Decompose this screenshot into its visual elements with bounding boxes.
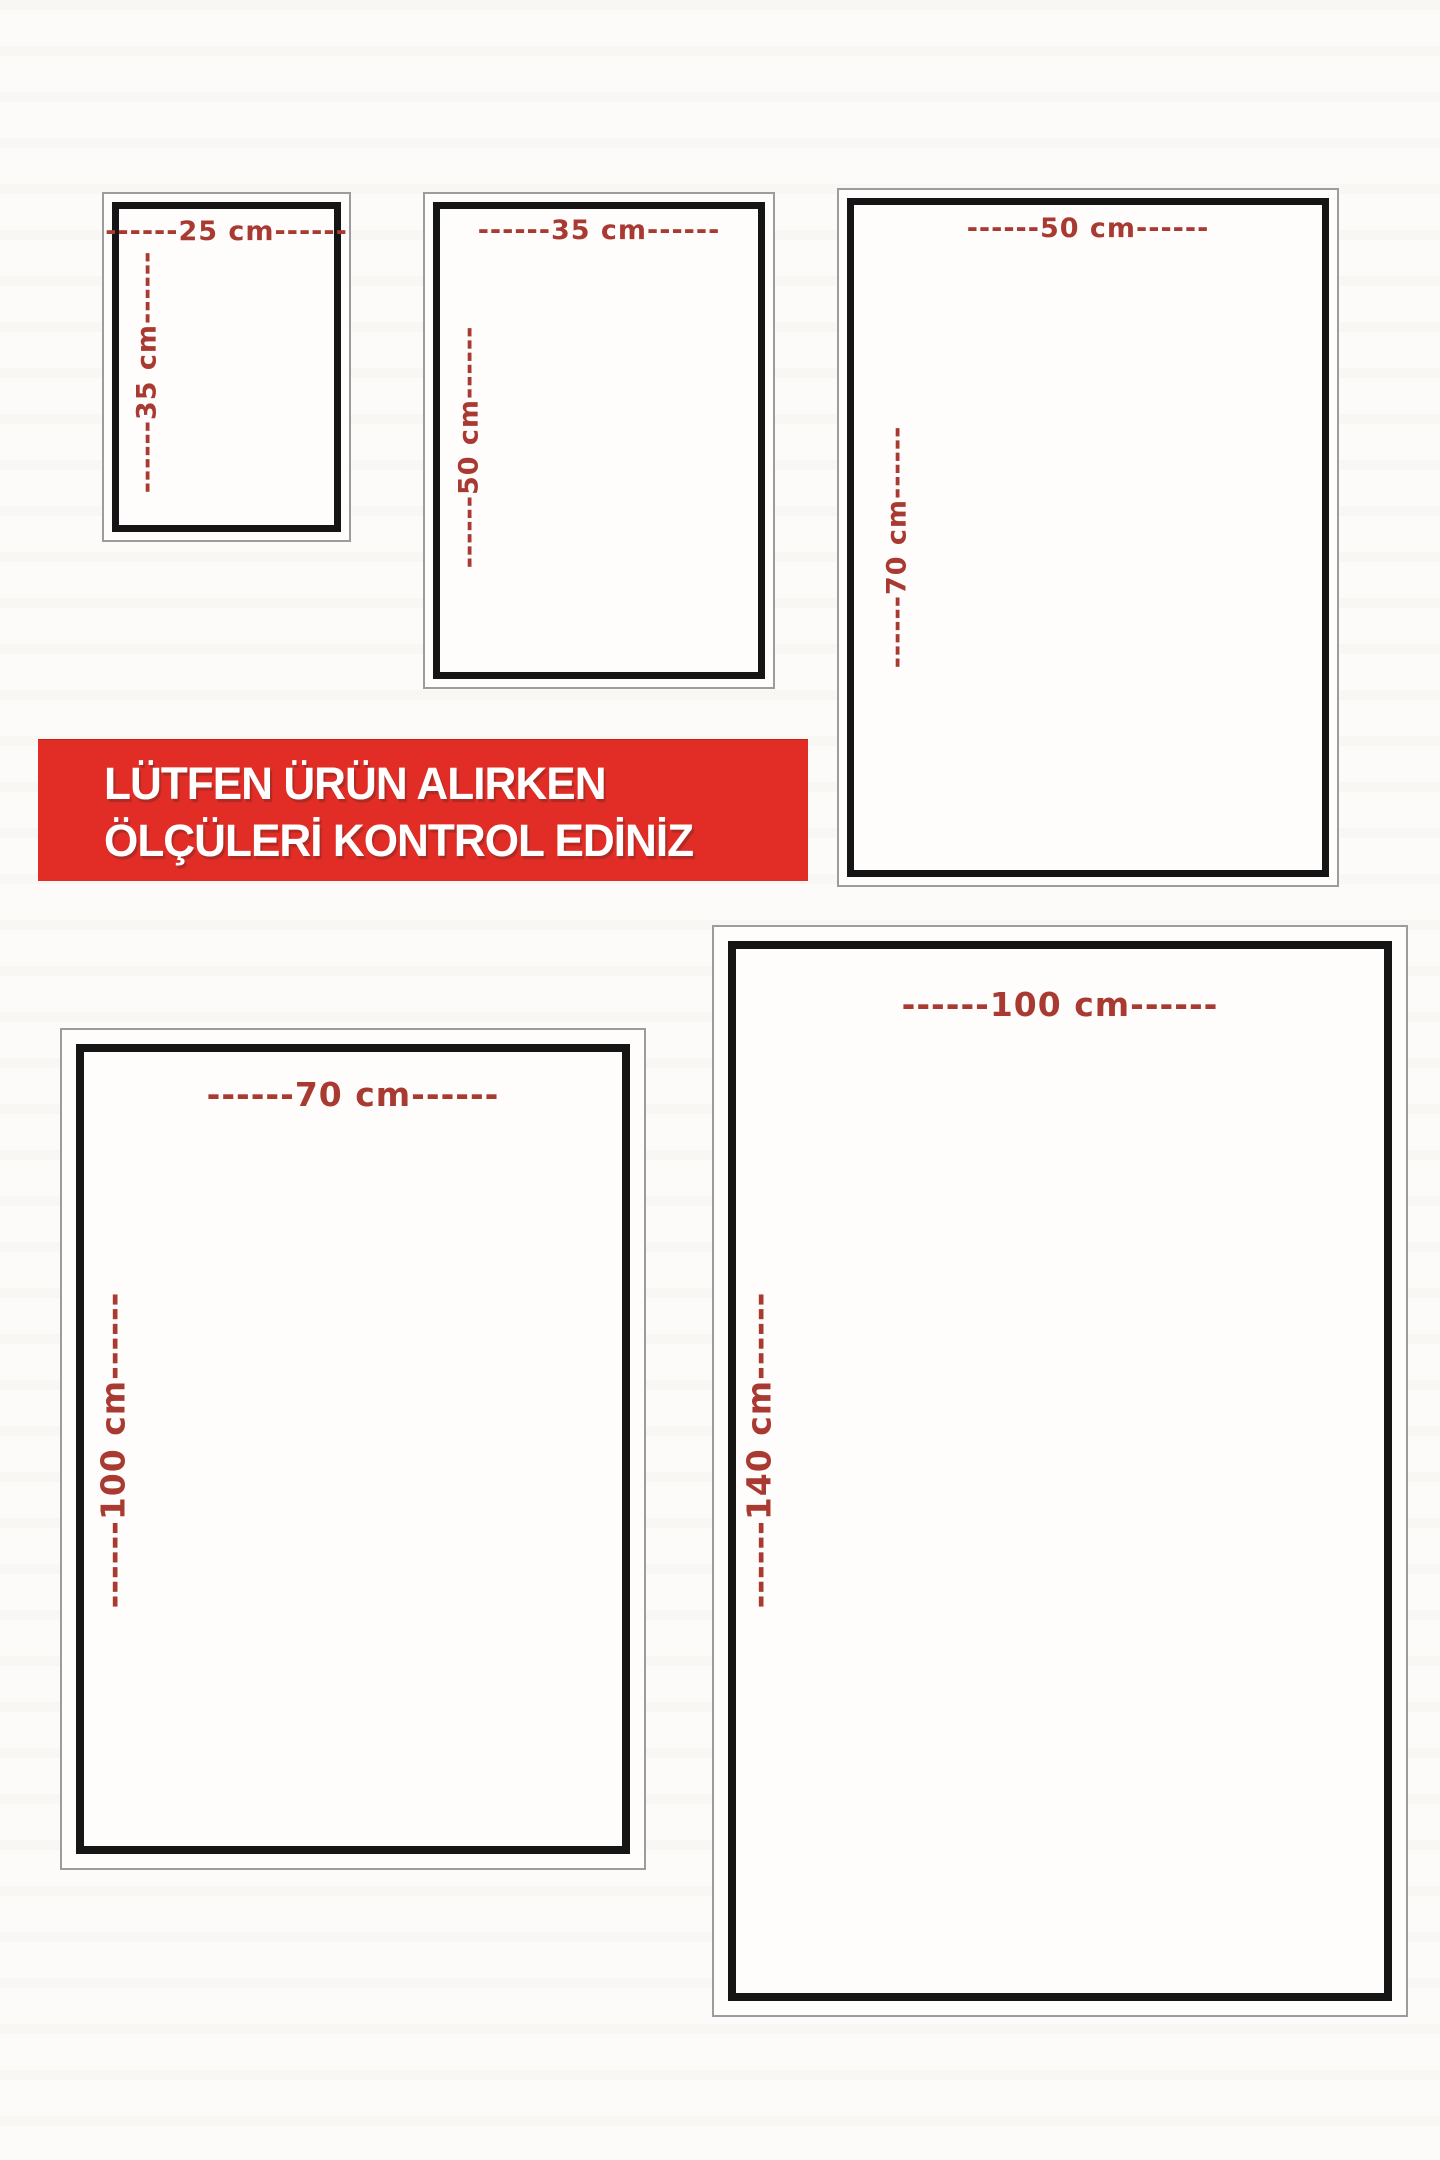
width-label: ------25 cm------ [105, 216, 348, 247]
size-box-100x140: ------100 cm------ ------140 cm------ [712, 925, 1408, 2017]
size-box-70x100: ------70 cm------ ------100 cm------ [60, 1028, 646, 1870]
size-box-25x35: ------25 cm------ ------35 cm------ [102, 192, 351, 542]
size-box-50x70-frame [847, 198, 1329, 877]
width-label: ------50 cm------ [967, 213, 1210, 244]
width-label: ------100 cm------ [902, 985, 1219, 1024]
notice-banner: LÜTFEN ÜRÜN ALIRKEN ÖLÇÜLERİ KONTROL EDİ… [38, 739, 808, 881]
width-label: ------35 cm------ [478, 215, 721, 246]
notice-line-1: LÜTFEN ÜRÜN ALIRKEN [104, 755, 774, 812]
height-label: ------70 cm------ [882, 426, 913, 669]
notice-line-2: ÖLÇÜLERİ KONTROL EDİNİZ [104, 812, 774, 869]
size-box-35x50: ------35 cm------ ------50 cm------ [423, 192, 775, 689]
height-label: ------35 cm------ [132, 251, 163, 494]
width-label: ------70 cm------ [207, 1075, 500, 1114]
size-box-70x100-frame [76, 1044, 630, 1854]
height-label: ------140 cm------ [740, 1292, 779, 1609]
height-label: ------100 cm------ [94, 1292, 133, 1609]
size-box-100x140-frame [728, 941, 1392, 2001]
height-label: ------50 cm------ [454, 326, 485, 569]
size-box-50x70: ------50 cm------ ------70 cm------ [837, 188, 1339, 887]
